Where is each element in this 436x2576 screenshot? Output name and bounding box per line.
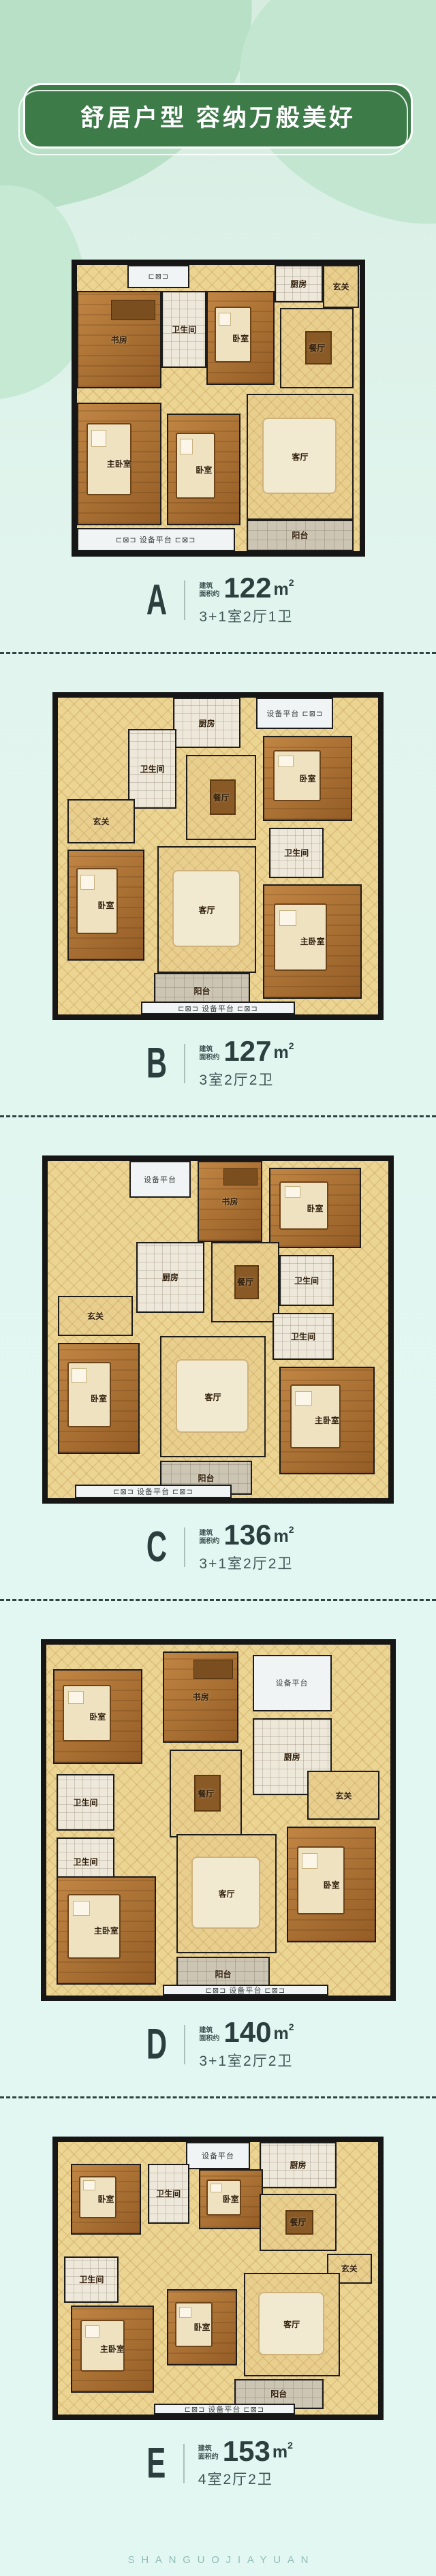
desk-icon [193, 1660, 233, 1679]
room-label: ⊏⊠⊐ 设备平台 ⊏⊠⊐ [206, 1985, 285, 1995]
area-prefix: 建筑 面积约 [199, 1046, 219, 1065]
caption-divider [184, 1044, 185, 1083]
floor-plan-canvas: 设备平台厨房卧室卫生间卧室餐厅卫生间玄关主卧室卧室客厅阳台⊏⊠⊐ 设备平台 ⊏⊠… [52, 2137, 384, 2420]
plan-caption: E 建筑 面积约 153 m2 4室2厅2卫 [143, 2438, 293, 2489]
room-tan: 客厅 [157, 846, 257, 973]
room-label: 书房 [111, 334, 127, 345]
plan-area-value: 140 [223, 2019, 271, 2046]
area-prefix: 建筑 面积约 [199, 1530, 219, 1549]
room-label: 玄关 [341, 2263, 358, 2274]
room-tan: 玄关 [67, 799, 135, 843]
floor-plan-section: 卧室书房设备平台餐厅厨房卫生间卫生间玄关主卧室客厅卧室阳台⊏⊠⊐ 设备平台 ⊏⊠… [0, 1639, 436, 2070]
plan-area-row: 建筑 面积约 140 m2 [199, 2019, 294, 2046]
floor-plan-section: ⊏⊠⊐书房卫生间卧室厨房玄关餐厅主卧室卧室客厅阳台⊏⊠⊐ 设备平台 ⊏⊠⊐ A … [0, 260, 436, 626]
room-tan: 玄关 [323, 265, 360, 308]
area-sup: 2 [289, 1040, 294, 1051]
plan-area-row: 建筑 面积约 153 m2 [198, 2438, 293, 2465]
room-label: 卫生间 [79, 2274, 104, 2285]
floor-plan-section: 设备平台厨房卧室卫生间卧室餐厅卫生间玄关主卧室卧室客厅阳台⊏⊠⊐ 设备平台 ⊏⊠… [0, 2137, 436, 2489]
area-sup: 2 [287, 2440, 293, 2451]
room-label: 卫生间 [291, 1331, 315, 1342]
plan-letter: B [146, 1042, 166, 1085]
floor-plan-section: 厨房设备平台 ⊏⊠⊐卫生间餐厅卧室玄关卧室客厅卫生间主卧室阳台⊏⊠⊐ 设备平台 … [0, 692, 436, 1089]
room-tan: 客厅 [244, 2273, 340, 2376]
room-tile: 卫生间 [279, 1255, 334, 1305]
dashed-separator [0, 2096, 436, 2098]
plan-area-row: 建筑 面积约 127 m2 [199, 1038, 294, 1065]
room-equipment-platform: 设备平台 [129, 1161, 191, 1198]
room-label: 厨房 [284, 1751, 300, 1763]
room-label: 书房 [193, 1691, 209, 1703]
area-sup: 2 [289, 1524, 294, 1535]
room-label: 卧室 [89, 1711, 106, 1722]
caption-divider [184, 1527, 185, 1567]
area-prefix: 建筑 面积约 [199, 583, 219, 602]
poster-page: 舒居户型 容纳万般美好 ⊏⊠⊐书房卫生间卧室厨房玄关餐厅主卧室卧室客厅阳台⊏⊠⊐… [0, 0, 436, 2576]
floor-plan-section: 设备平台书房卧室厨房餐厅卫生间玄关卧室客厅卫生间主卧室阳台⊏⊠⊐ 设备平台 ⊏⊠… [0, 1155, 436, 1573]
room-label: 设备平台 [276, 1677, 309, 1688]
room-label: 厨房 [162, 1271, 178, 1283]
plan-info: 建筑 面积约 122 m2 3+1室2厅1卫 [199, 574, 294, 626]
room-label: 阳台 [215, 1968, 232, 1980]
area-unit: m2 [273, 1525, 294, 1549]
room-tile: 厨房 [275, 265, 323, 302]
room-label: 客厅 [219, 1888, 235, 1899]
room-equipment-platform: 设备平台 [253, 1655, 332, 1711]
room-tan: 餐厅 [170, 1750, 242, 1837]
floor-plan-canvas: 卧室书房设备平台餐厅厨房卫生间卫生间玄关主卧室客厅卧室阳台⊏⊠⊐ 设备平台 ⊏⊠… [41, 1639, 396, 2001]
dashed-separator [0, 1115, 436, 1117]
room-wood: 卧室 [71, 2164, 141, 2235]
header-badge: 舒居户型 容纳万般美好 [23, 83, 413, 149]
room-tan: 客厅 [247, 394, 354, 520]
area-prefix-line1: 建筑 [199, 1046, 219, 1054]
room-label: 卧室 [193, 2321, 210, 2333]
area-sup: 2 [289, 577, 294, 588]
area-prefix-line2: 面积约 [199, 1054, 219, 1062]
room-label: 玄关 [335, 1790, 352, 1801]
room-label: 餐厅 [213, 792, 230, 803]
plan-area-row: 建筑 面积约 122 m2 [199, 574, 294, 602]
room-label: 阳台 [193, 985, 210, 997]
room-wood: 主卧室 [279, 1367, 375, 1474]
room-wood: 书房 [198, 1161, 262, 1242]
desk-icon [111, 300, 155, 320]
room-tan: 客厅 [160, 1336, 266, 1457]
plan-config: 4室2厅2卫 [198, 2468, 293, 2489]
room-label: 卫生间 [140, 763, 165, 775]
room-tan: 餐厅 [280, 308, 354, 388]
plan-caption: A 建筑 面积约 122 m2 3+1室2厅1卫 [142, 574, 294, 626]
room-wood: 主卧室 [263, 884, 362, 998]
room-label: 餐厅 [237, 1276, 253, 1288]
room-label: 厨房 [199, 717, 215, 729]
room-wood: 卧室 [269, 1168, 361, 1249]
room-tile: 卫生间 [128, 729, 176, 808]
room-label: 卧室 [196, 464, 212, 476]
room-label: 主卧室 [300, 935, 325, 947]
area-prefix-line1: 建筑 [199, 2027, 219, 2035]
dashed-separator [0, 1599, 436, 1601]
room-wood: 主卧室 [57, 1876, 156, 1985]
room-label: 主卧室 [315, 1414, 339, 1426]
plan-config: 3室2厅2卫 [199, 1069, 294, 1089]
plan-area-value: 153 [223, 2438, 270, 2465]
plan-caption: B 建筑 面积约 127 m2 3室2厅2卫 [142, 1038, 294, 1089]
room-label: 玄关 [93, 816, 109, 827]
room-label: 客厅 [199, 904, 215, 916]
room-label: 卫生间 [294, 1275, 319, 1286]
room-wood: 书房 [163, 1651, 238, 1743]
plan-info: 建筑 面积约 153 m2 4室2厅2卫 [198, 2438, 293, 2489]
room-equipment-platform: ⊏⊠⊐ 设备平台 ⊏⊠⊐ [154, 2404, 295, 2415]
room-label: 餐厅 [198, 1788, 214, 1799]
floor-plan-canvas: ⊏⊠⊐书房卫生间卧室厨房玄关餐厅主卧室卧室客厅阳台⊏⊠⊐ 设备平台 ⊏⊠⊐ [72, 260, 365, 557]
floor-plan-canvas: 厨房设备平台 ⊏⊠⊐卫生间餐厅卧室玄关卧室客厅卫生间主卧室阳台⊏⊠⊐ 设备平台 … [52, 692, 384, 1020]
plan-letter: E [147, 2442, 166, 2485]
room-tan: 玄关 [58, 1296, 133, 1336]
room-label: 卧室 [324, 1879, 340, 1891]
plan-area-value: 122 [223, 574, 271, 602]
room-wood: 卧室 [263, 736, 353, 822]
room-label: 主卧室 [100, 2343, 125, 2355]
room-wood: 卧室 [67, 850, 144, 961]
dashed-separator [0, 652, 436, 654]
room-label: 设备平台 ⊏⊠⊐ [266, 708, 323, 719]
area-unit: m2 [273, 2022, 294, 2046]
room-label: 书房 [221, 1196, 238, 1207]
room-label: 客厅 [204, 1391, 221, 1403]
room-label: 卧室 [223, 2193, 239, 2205]
plan-caption: C 建筑 面积约 136 m2 3+1室2厅2卫 [142, 1521, 294, 1573]
area-prefix-line1: 建筑 [199, 1530, 219, 1538]
floor-plan-canvas: 设备平台书房卧室厨房餐厅卫生间玄关卧室客厅卫生间主卧室阳台⊏⊠⊐ 设备平台 ⊏⊠… [42, 1155, 394, 1504]
area-prefix-line2: 面积约 [199, 591, 219, 599]
room-tile: 厨房 [260, 2142, 337, 2188]
room-equipment-platform: 设备平台 ⊏⊠⊐ [256, 698, 333, 730]
area-prefix-line2: 面积约 [199, 1538, 219, 1546]
room-tan: 客厅 [176, 1834, 276, 1953]
plan-area-row: 建筑 面积约 136 m2 [199, 1521, 294, 1549]
room-label: 卫生间 [74, 1856, 98, 1867]
room-wood: 卧室 [167, 414, 240, 525]
plan-config: 3+1室2厅2卫 [199, 2050, 294, 2070]
plan-letter: D [146, 2023, 166, 2066]
room-wood: 卧室 [199, 2169, 263, 2229]
area-prefix-line2: 面积约 [199, 2035, 219, 2043]
room-label: 主卧室 [94, 1925, 119, 1936]
caption-divider [184, 2025, 185, 2064]
room-wood: 卧室 [58, 1343, 140, 1454]
room-label: 卫生间 [284, 847, 309, 858]
room-label: ⊏⊠⊐ 设备平台 ⊏⊠⊐ [178, 1003, 258, 1014]
room-gray: 阳台 [247, 520, 354, 551]
plan-letter: C [146, 1525, 166, 1568]
room-tile: 卫生间 [272, 1313, 334, 1360]
room-tile: 卫生间 [64, 2256, 119, 2303]
area-prefix-line2: 面积约 [198, 2453, 219, 2462]
room-tile: 厨房 [173, 698, 240, 748]
plan-info: 建筑 面积约 127 m2 3室2厅2卫 [199, 1038, 294, 1089]
room-tile: 卫生间 [269, 828, 324, 878]
room-label: 客厅 [292, 451, 308, 463]
caption-divider [184, 580, 185, 620]
room-label: ⊏⊠⊐ 设备平台 ⊏⊠⊐ [116, 534, 196, 545]
plan-info: 建筑 面积约 140 m2 3+1室2厅2卫 [199, 2019, 294, 2070]
area-prefix-line1: 建筑 [198, 2445, 219, 2453]
room-wood: 书房 [77, 291, 162, 388]
plan-caption: D 建筑 面积约 140 m2 3+1室2厅2卫 [142, 2019, 294, 2070]
room-equipment-platform: ⊏⊠⊐ [127, 265, 189, 288]
room-label: 卧室 [97, 899, 114, 911]
room-label: 卧室 [232, 332, 249, 344]
room-label: 玄关 [87, 1310, 104, 1322]
room-wood: 卧室 [287, 1827, 376, 1942]
room-label: 卫生间 [156, 2188, 181, 2199]
page-title: 舒居户型 容纳万般美好 [80, 99, 356, 134]
room-label: 设备平台 [202, 2150, 234, 2161]
room-label: 卧室 [300, 773, 316, 784]
area-prefix: 建筑 面积约 [198, 2445, 219, 2464]
room-wood: 卧室 [53, 1669, 142, 1764]
brand-text: SHANGUOJIAYUAN [0, 2554, 436, 2566]
room-equipment-platform: ⊏⊠⊐ 设备平台 ⊏⊠⊐ [163, 1985, 328, 1995]
room-wood: 主卧室 [71, 2306, 154, 2393]
room-label: ⊏⊠⊐ 设备平台 ⊏⊠⊐ [185, 2404, 264, 2415]
plan-letter: A [146, 579, 166, 622]
room-tile: 卫生间 [57, 1774, 115, 1830]
area-prefix: 建筑 面积约 [199, 2027, 219, 2046]
area-unit: m2 [272, 2440, 293, 2464]
room-label: 卫生间 [172, 324, 196, 335]
caption-divider [183, 2444, 185, 2483]
room-wood: 卧室 [206, 291, 275, 386]
room-label: 卧室 [97, 2193, 114, 2205]
room-tan: 餐厅 [211, 1242, 279, 1323]
plan-info: 建筑 面积约 136 m2 3+1室2厅2卫 [199, 1521, 294, 1573]
room-tile: 卫生间 [161, 291, 206, 368]
plan-area-value: 136 [223, 1521, 271, 1549]
room-label: ⊏⊠⊐ [149, 272, 170, 281]
room-label: 餐厅 [309, 342, 325, 354]
room-label: 设备平台 [144, 1174, 176, 1185]
room-label: 卧室 [91, 1393, 107, 1404]
room-label: 阳台 [198, 1472, 214, 1484]
room-tan: 餐厅 [186, 755, 256, 841]
room-wood: 主卧室 [77, 403, 162, 526]
room-label: ⊏⊠⊐ 设备平台 ⊏⊠⊐ [113, 1486, 193, 1497]
area-prefix-line1: 建筑 [199, 583, 219, 591]
floor-plan-list: ⊏⊠⊐书房卫生间卧室厨房玄关餐厅主卧室卧室客厅阳台⊏⊠⊐ 设备平台 ⊏⊠⊐ A … [0, 260, 436, 2489]
desk-icon [223, 1168, 257, 1185]
room-tile: 卫生间 [148, 2164, 189, 2224]
room-equipment-platform: ⊏⊠⊐ 设备平台 ⊏⊠⊐ [141, 1002, 295, 1014]
room-label: 厨房 [290, 2159, 306, 2171]
area-unit: m2 [273, 1041, 294, 1065]
room-label: 厨房 [290, 278, 307, 290]
room-label: 餐厅 [290, 2216, 306, 2228]
room-tan: 餐厅 [260, 2194, 337, 2251]
room-label: 玄关 [333, 281, 349, 292]
room-label: 阳台 [292, 529, 308, 541]
room-label: 主卧室 [107, 458, 131, 469]
plan-area-value: 127 [223, 1038, 271, 1065]
room-label: 卫生间 [74, 1797, 98, 1808]
room-label: 卧室 [307, 1202, 323, 1214]
room-equipment-platform: 设备平台 [186, 2142, 250, 2169]
room-equipment-platform: ⊏⊠⊐ 设备平台 ⊏⊠⊐ [77, 528, 235, 551]
room-label: 客厅 [283, 2318, 300, 2330]
plan-config: 3+1室2厅2卫 [199, 1553, 294, 1573]
room-tile: 厨房 [136, 1242, 204, 1313]
room-equipment-platform: ⊏⊠⊐ 设备平台 ⊏⊠⊐ [75, 1485, 232, 1498]
area-sup: 2 [289, 2021, 294, 2032]
room-wood: 卧室 [167, 2289, 237, 2365]
plan-config: 3+1室2厅1卫 [199, 606, 294, 626]
area-unit: m2 [273, 578, 294, 602]
room-tan: 玄关 [307, 1771, 379, 1820]
room-label: 阳台 [270, 2388, 287, 2400]
